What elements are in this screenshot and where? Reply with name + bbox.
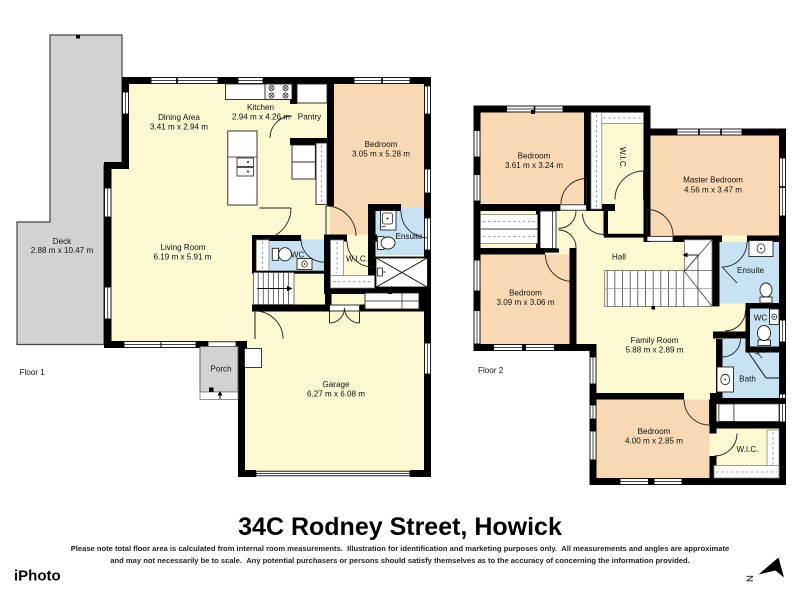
svg-text:2.88 m x 10.47 m: 2.88 m x 10.47 m [31,246,94,255]
svg-text:Please note total floor area i: Please note total floor area is calculat… [71,544,730,553]
svg-text:WC: WC [291,251,305,260]
svg-text:Bedroom: Bedroom [509,289,542,298]
svg-text:W.I.C.: W.I.C. [618,147,627,169]
svg-text:Pantry: Pantry [298,113,322,122]
svg-text:Bedroom: Bedroom [638,427,671,436]
svg-text:Bedroom: Bedroom [365,140,398,149]
svg-text:3.09 m x 3.06 m: 3.09 m x 3.06 m [496,298,554,307]
svg-text:4.00 m x 2.85 m: 4.00 m x 2.85 m [625,437,683,446]
svg-text:Floor 2: Floor 2 [478,366,504,375]
svg-text:6.19 m x 5.91 m: 6.19 m x 5.91 m [153,253,211,262]
svg-text:4.56 m x 3.47 m: 4.56 m x 3.47 m [684,186,742,195]
svg-text:Ensuite: Ensuite [737,266,764,275]
svg-text:3.61 m x 3.24 m: 3.61 m x 3.24 m [505,161,563,170]
svg-text:Master Bedroom: Master Bedroom [683,176,743,185]
svg-text:Kitchen: Kitchen [247,103,274,112]
svg-text:WC: WC [754,314,768,323]
svg-text:6.27 m x 6.08 m: 6.27 m x 6.08 m [307,390,365,399]
svg-text:Bedroom: Bedroom [518,152,551,161]
svg-text:and may not necessarily be to: and may not necessarily be to scale. Any… [110,556,689,565]
svg-text:Porch: Porch [210,365,231,374]
svg-text:3.05 m x 5.28 m: 3.05 m x 5.28 m [352,150,410,159]
svg-text:iPhoto: iPhoto [14,568,61,585]
svg-text:34C Rodney Street, Howick: 34C Rodney Street, Howick [238,513,562,541]
svg-text:W.I.C.: W.I.C. [736,445,758,454]
svg-text:Dining Area: Dining Area [158,113,200,122]
svg-text:Bath: Bath [739,375,756,384]
svg-text:Family Room: Family Room [631,336,679,345]
svg-text:3.41 m x 2.94 m: 3.41 m x 2.94 m [150,123,208,132]
svg-text:Floor 1: Floor 1 [20,368,46,377]
svg-text:Garage: Garage [323,380,350,389]
svg-text:Deck: Deck [53,237,72,246]
svg-text:W.I.C.: W.I.C. [346,255,368,264]
svg-text:Hall: Hall [612,253,626,262]
svg-text:Living Room: Living Room [161,243,206,252]
svg-text:2.94 m x 4.26 m: 2.94 m x 4.26 m [232,113,290,122]
svg-text:Ensuite: Ensuite [396,232,423,241]
svg-text:5.88 m x 2.89 m: 5.88 m x 2.89 m [625,346,683,355]
svg-text:N: N [745,575,756,582]
